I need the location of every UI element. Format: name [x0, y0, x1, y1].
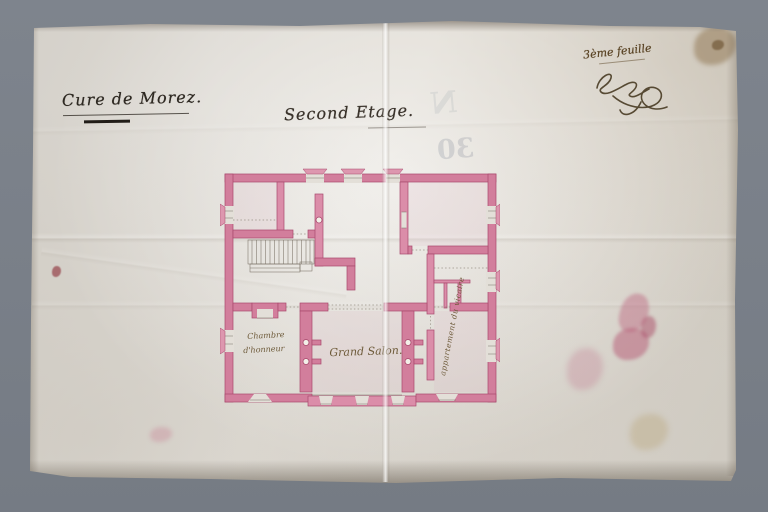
- photo-background: { "photo": { "background_color": "#7b828…: [0, 0, 768, 512]
- project-title-underline-thick: [84, 120, 130, 124]
- stain-red-dot: [52, 266, 61, 277]
- project-title: Cure de Morez.: [62, 87, 203, 110]
- floor-plan: .w{fill:#d27e9c;stroke:#a8496d;stroke-wi…: [220, 168, 500, 412]
- stain-pink-small: [567, 348, 603, 390]
- room-label-grand-salon: Grand Salon.: [329, 344, 402, 360]
- room-label-chambre-line2: d'honneur: [243, 344, 286, 355]
- signature-flourish: [613, 87, 667, 109]
- signature-stroke: [597, 74, 649, 96]
- paper-sheet: N 30 Cure de Morez. Second Etage. 3ème f…: [0, 0, 768, 512]
- stain-yellow: [630, 414, 668, 450]
- stain-pink-bottom: [150, 427, 172, 442]
- bleedthrough-letter: N: [429, 85, 459, 122]
- project-title-underline-thin: [63, 113, 189, 116]
- room-label-chambre-line1: Chambre: [247, 330, 285, 341]
- stain-pink-large-c: [641, 316, 656, 338]
- edge-shadow-left: [28, 24, 39, 476]
- edge-shadow-right: [726, 24, 739, 476]
- staircase: [248, 240, 314, 272]
- fold-vertical: [382, 20, 390, 482]
- architect-signature: [583, 60, 683, 120]
- bleedthrough-number: 30: [436, 133, 476, 167]
